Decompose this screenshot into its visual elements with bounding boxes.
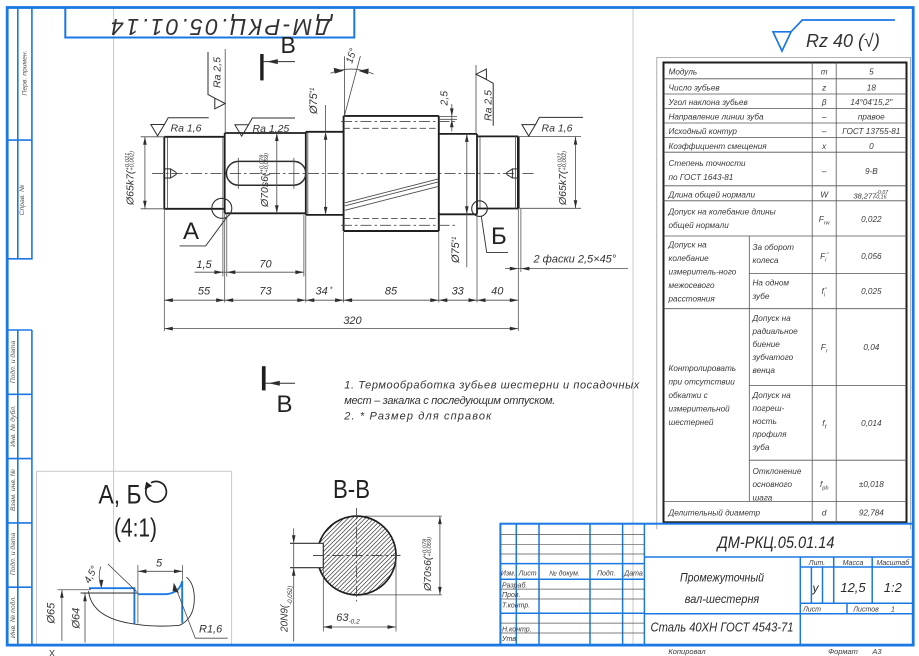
svg-text:Ø65: Ø65 [46,602,58,625]
svg-text:Ø64: Ø64 [71,608,83,630]
svg-text:2 фаски 2,5×45°: 2 фаски 2,5×45° [533,254,617,266]
svg-text:Ra 1,25: Ra 1,25 [253,123,290,135]
svg-text:40: 40 [491,286,504,298]
svg-text:Угол наклона зубьев: Угол наклона зубьев [668,98,749,107]
svg-text:погреш-: погреш- [753,404,785,413]
svg-text:Ra 1,6: Ra 1,6 [542,123,573,135]
svg-text:5: 5 [869,68,874,77]
svg-text:–: – [821,127,827,136]
svg-text:1. Термообработка зубьев шес: 1. Термообработка зубьев шестерни и поса… [344,380,640,392]
svg-text:0,04: 0,04 [863,343,879,352]
svg-text:Т.контр.: Т.контр. [502,602,530,609]
svg-text:Пров.: Пров. [502,592,521,599]
svg-text:Направление линии зуба: Направление линии зуба [669,113,765,122]
svg-text:Инв. № подл.: Инв. № подл. [9,596,17,638]
svg-text:Перв. примен.: Перв. примен. [22,50,29,95]
svg-text:–: – [821,113,827,122]
svg-text:Инв. № дубл.: Инв. № дубл. [9,405,17,447]
svg-text:Коэффициент смещения: Коэффициент смещения [669,142,768,151]
svg-text:Формат: Формат [828,647,858,656]
svg-text:Подп. и дата: Подп. и дата [9,341,17,384]
svg-text:Разраб.: Разраб. [502,581,527,589]
svg-text:Отклонение: Отклонение [753,467,802,476]
svg-text:0,056: 0,056 [861,252,882,261]
svg-text:x: x [49,646,55,656]
svg-text:Контролировать: Контролировать [669,364,737,373]
svg-text:зуба: зуба [752,443,770,452]
svg-text:Допуск на: Допуск на [752,314,792,323]
svg-text:Лист: Лист [518,571,537,578]
svg-text:колеса: колеса [753,256,779,265]
svg-text:Подп.: Подп. [597,570,616,578]
svg-text:На одном: На одном [753,279,790,288]
svg-text:радиальное: радиальное [752,327,799,336]
svg-text:В: В [277,391,293,418]
svg-text:1:2: 1:2 [884,580,903,595]
svg-text:0,022: 0,022 [861,215,882,224]
svg-text:z: z [821,84,826,93]
svg-text:W: W [820,191,829,200]
svg-text:А, Б: А, Б [99,480,142,510]
svg-text:320: 320 [343,315,362,327]
svg-text:За оборот: За оборот [753,243,795,252]
svg-text:92,784: 92,784 [859,509,884,518]
svg-text:Лист: Лист [802,607,821,614]
svg-text:В-В: В-В [333,474,370,504]
svg-text:Допуск на: Допуск на [752,391,792,400]
svg-text:В: В [281,32,296,58]
svg-text:(4:1): (4:1) [114,513,157,543]
svg-text:85: 85 [385,286,398,298]
svg-text:Изм.: Изм. [501,571,516,578]
svg-text:№ докум.: № докум. [549,570,580,578]
svg-text:межосевого: межосевого [669,281,716,290]
svg-text:Лит.: Лит. [808,560,825,567]
svg-text:измеритель-ного: измеритель-ного [669,268,737,277]
svg-text:ность: ность [753,417,777,426]
svg-text:Ra 2,5: Ra 2,5 [483,90,495,121]
svg-text:расстояния: расстояния [668,295,716,304]
svg-text:Ø70s6(+0,078+0,059): Ø70s6(+0,078+0,059) [259,153,271,208]
svg-text:Ø65k7(+0,021+0,002): Ø65k7(+0,021+0,002) [557,151,569,206]
svg-text:d: d [822,509,827,518]
svg-text:вал-шестерня: вал-шестерня [685,592,760,606]
svg-text:колебание: колебание [669,254,710,263]
svg-text:общей нормали: общей нормали [669,221,730,230]
svg-text:1,5: 1,5 [196,259,212,271]
svg-text:70: 70 [259,259,272,271]
svg-text:14°04'15,2": 14°04'15,2" [850,98,893,107]
svg-text:Промежуточный: Промежуточный [680,571,764,585]
svg-text:Копировал: Копировал [668,647,706,656]
svg-text:2. * Размер для справок: 2. * Размер для справок [343,411,492,423]
svg-text:38,277-0,07-0,16: 38,277-0,07-0,16 [853,190,889,201]
svg-text:Листов: Листов [852,607,879,614]
svg-text:Сталь 40ХН ГОСТ 4543-71: Сталь 40ХН ГОСТ 4543-71 [651,621,794,635]
svg-text:Длина общей нормали: Длина общей нормали [668,191,756,200]
svg-text:правое: правое [858,113,885,122]
svg-text:0: 0 [869,142,874,151]
svg-text:Модуль: Модуль [669,68,698,77]
svg-text:Ra 1,6: Ra 1,6 [171,123,202,135]
svg-text:Исходный контур: Исходный контур [669,127,738,136]
svg-text:0,025: 0,025 [861,287,882,296]
svg-text:профиля: профиля [753,430,788,439]
svg-text:Подп. и дата: Подп. и дата [9,533,17,576]
svg-text:при отсутствии: при отсутствии [669,378,736,387]
svg-text:–: – [821,167,827,176]
svg-text:ДМ-РКЦ.05.01.14: ДМ-РКЦ.05.01.14 [111,14,334,40]
svg-text:Взам. инв. №: Взам. инв. № [10,469,17,511]
svg-text:0,014: 0,014 [861,419,882,428]
svg-text:зубе: зубе [752,292,770,301]
svg-text:m: m [821,68,828,77]
svg-text:2,5: 2,5 [439,91,451,107]
svg-text:55: 55 [198,286,211,298]
svg-text:мест – закалка с последующим о: мест – закалка с последующим отпуском. [344,395,555,407]
svg-text:73: 73 [259,286,272,298]
svg-text:Число зубьев: Число зубьев [669,84,721,93]
svg-text:А: А [183,218,199,245]
svg-text:β: β [821,98,827,107]
svg-text:венца: венца [753,366,776,375]
svg-text:Дата: Дата [623,571,643,578]
svg-text:9-В: 9-В [865,167,878,176]
svg-text:33: 33 [452,286,465,298]
svg-text:Делительный диаметр: Делительный диаметр [668,509,761,518]
svg-text:Справ. №: Справ. № [19,185,26,216]
svg-text:Б: Б [491,223,507,250]
svg-text:Ø70s6(+0,078+0,059): Ø70s6(+0,078+0,059) [422,537,434,592]
svg-text:измерительной: измерительной [669,405,731,414]
svg-text:у: у [812,581,820,595]
svg-text:Н.контр.: Н.контр. [502,626,532,633]
svg-text:±0,018: ±0,018 [859,480,884,489]
svg-text:А3: А3 [871,647,882,656]
svg-text:Масса: Масса [843,560,864,567]
svg-text:Ø65k7(+0,021+0,002): Ø65k7(+0,021+0,002) [125,151,137,206]
svg-text:Ra 2,5: Ra 2,5 [212,57,224,88]
svg-text:18: 18 [867,84,877,93]
svg-text:12,5: 12,5 [840,580,866,595]
svg-text:шестерней: шестерней [669,418,714,427]
svg-text:шага: шага [753,494,773,503]
svg-text:Утв.: Утв. [501,636,518,643]
svg-text:R1,6: R1,6 [199,624,223,636]
svg-text:Rz 40 (√): Rz 40 (√) [806,31,880,51]
svg-text:ДМ-РКЦ.05.01.14: ДМ-РКЦ.05.01.14 [716,533,835,552]
svg-text:зубчатого: зубчатого [752,353,794,362]
svg-text:основного: основного [753,480,793,489]
svg-text:биение: биение [753,340,781,349]
svg-text:Степень точности: Степень точности [669,159,747,168]
svg-text:Допуск на: Допуск на [668,241,708,250]
svg-text:по ГОСТ 1643-81: по ГОСТ 1643-81 [669,173,734,182]
svg-text:Допуск на колебание длины: Допуск на колебание длины [668,208,776,217]
svg-text:Масштаб: Масштаб [876,559,910,567]
svg-text:обкатки с: обкатки с [669,391,708,400]
svg-text:5: 5 [156,558,163,570]
svg-text:1: 1 [891,607,895,614]
svg-text:ГОСТ 13755-81: ГОСТ 13755-81 [842,127,900,136]
